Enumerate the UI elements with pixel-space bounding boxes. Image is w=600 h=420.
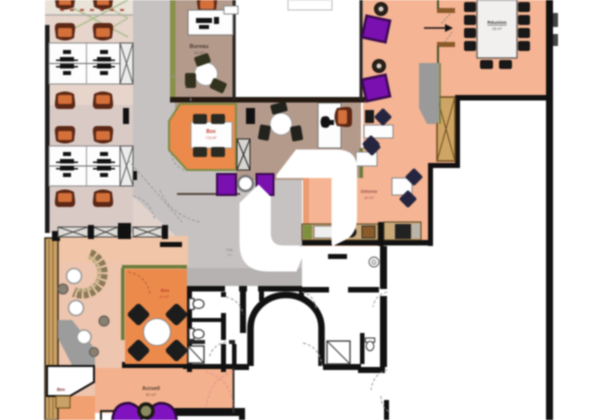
svg-text:Réunion: Réunion — [487, 20, 506, 26]
svg-text:12 m²: 12 m² — [194, 50, 205, 55]
svg-text:26 m²: 26 m² — [492, 27, 502, 31]
svg-text:67 m²: 67 m² — [146, 393, 156, 397]
svg-text:Box: Box — [57, 387, 66, 392]
svg-text:11 m²: 11 m² — [159, 295, 169, 299]
svg-text:Box: Box — [161, 288, 170, 293]
svg-text:G: G — [372, 261, 377, 267]
svg-text:Che.: Che. — [226, 248, 234, 252]
svg-text:34 m²: 34 m² — [364, 196, 374, 200]
svg-text:9m²: 9m² — [227, 253, 233, 257]
svg-text:Accueil: Accueil — [142, 386, 160, 392]
svg-text:Détente: Détente — [361, 189, 378, 194]
svg-text:Box: Box — [206, 129, 216, 135]
svg-text:7,5 m²: 7,5 m² — [206, 136, 217, 140]
